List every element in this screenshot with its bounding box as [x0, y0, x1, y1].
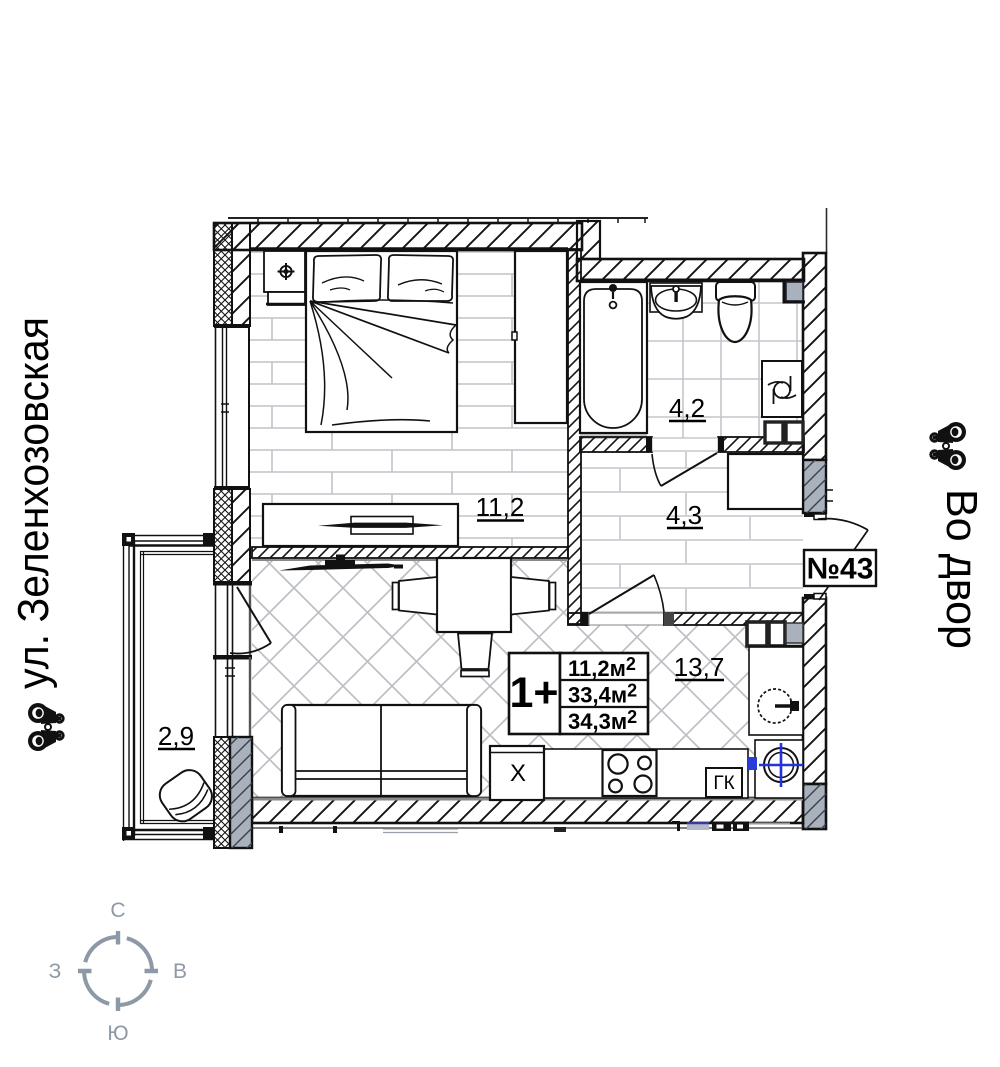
- svg-text:33,4м2: 33,4м2: [568, 681, 637, 708]
- svg-text:2,9: 2,9: [158, 721, 194, 751]
- svg-text:№43: №43: [807, 553, 874, 586]
- svg-text:11,2: 11,2: [476, 492, 525, 522]
- svg-text:11,2м2: 11,2м2: [568, 654, 636, 681]
- svg-text:4,2: 4,2: [669, 393, 705, 423]
- svg-text:Во двор: Во двор: [937, 489, 986, 649]
- svg-text:4,3: 4,3: [666, 500, 702, 530]
- svg-text:34,3м2: 34,3м2: [568, 707, 637, 734]
- svg-text:ул. Зеленхозовская: ул. Зеленхозовская: [9, 317, 58, 689]
- svg-text:1+: 1+: [509, 669, 558, 717]
- svg-text:З: З: [49, 960, 62, 983]
- svg-text:ГК: ГК: [713, 773, 734, 794]
- svg-text:X: X: [510, 760, 526, 787]
- svg-text:Ю: Ю: [107, 1022, 128, 1045]
- svg-text:В: В: [173, 960, 187, 983]
- svg-text:13,7: 13,7: [674, 652, 725, 682]
- svg-text:С: С: [110, 899, 125, 922]
